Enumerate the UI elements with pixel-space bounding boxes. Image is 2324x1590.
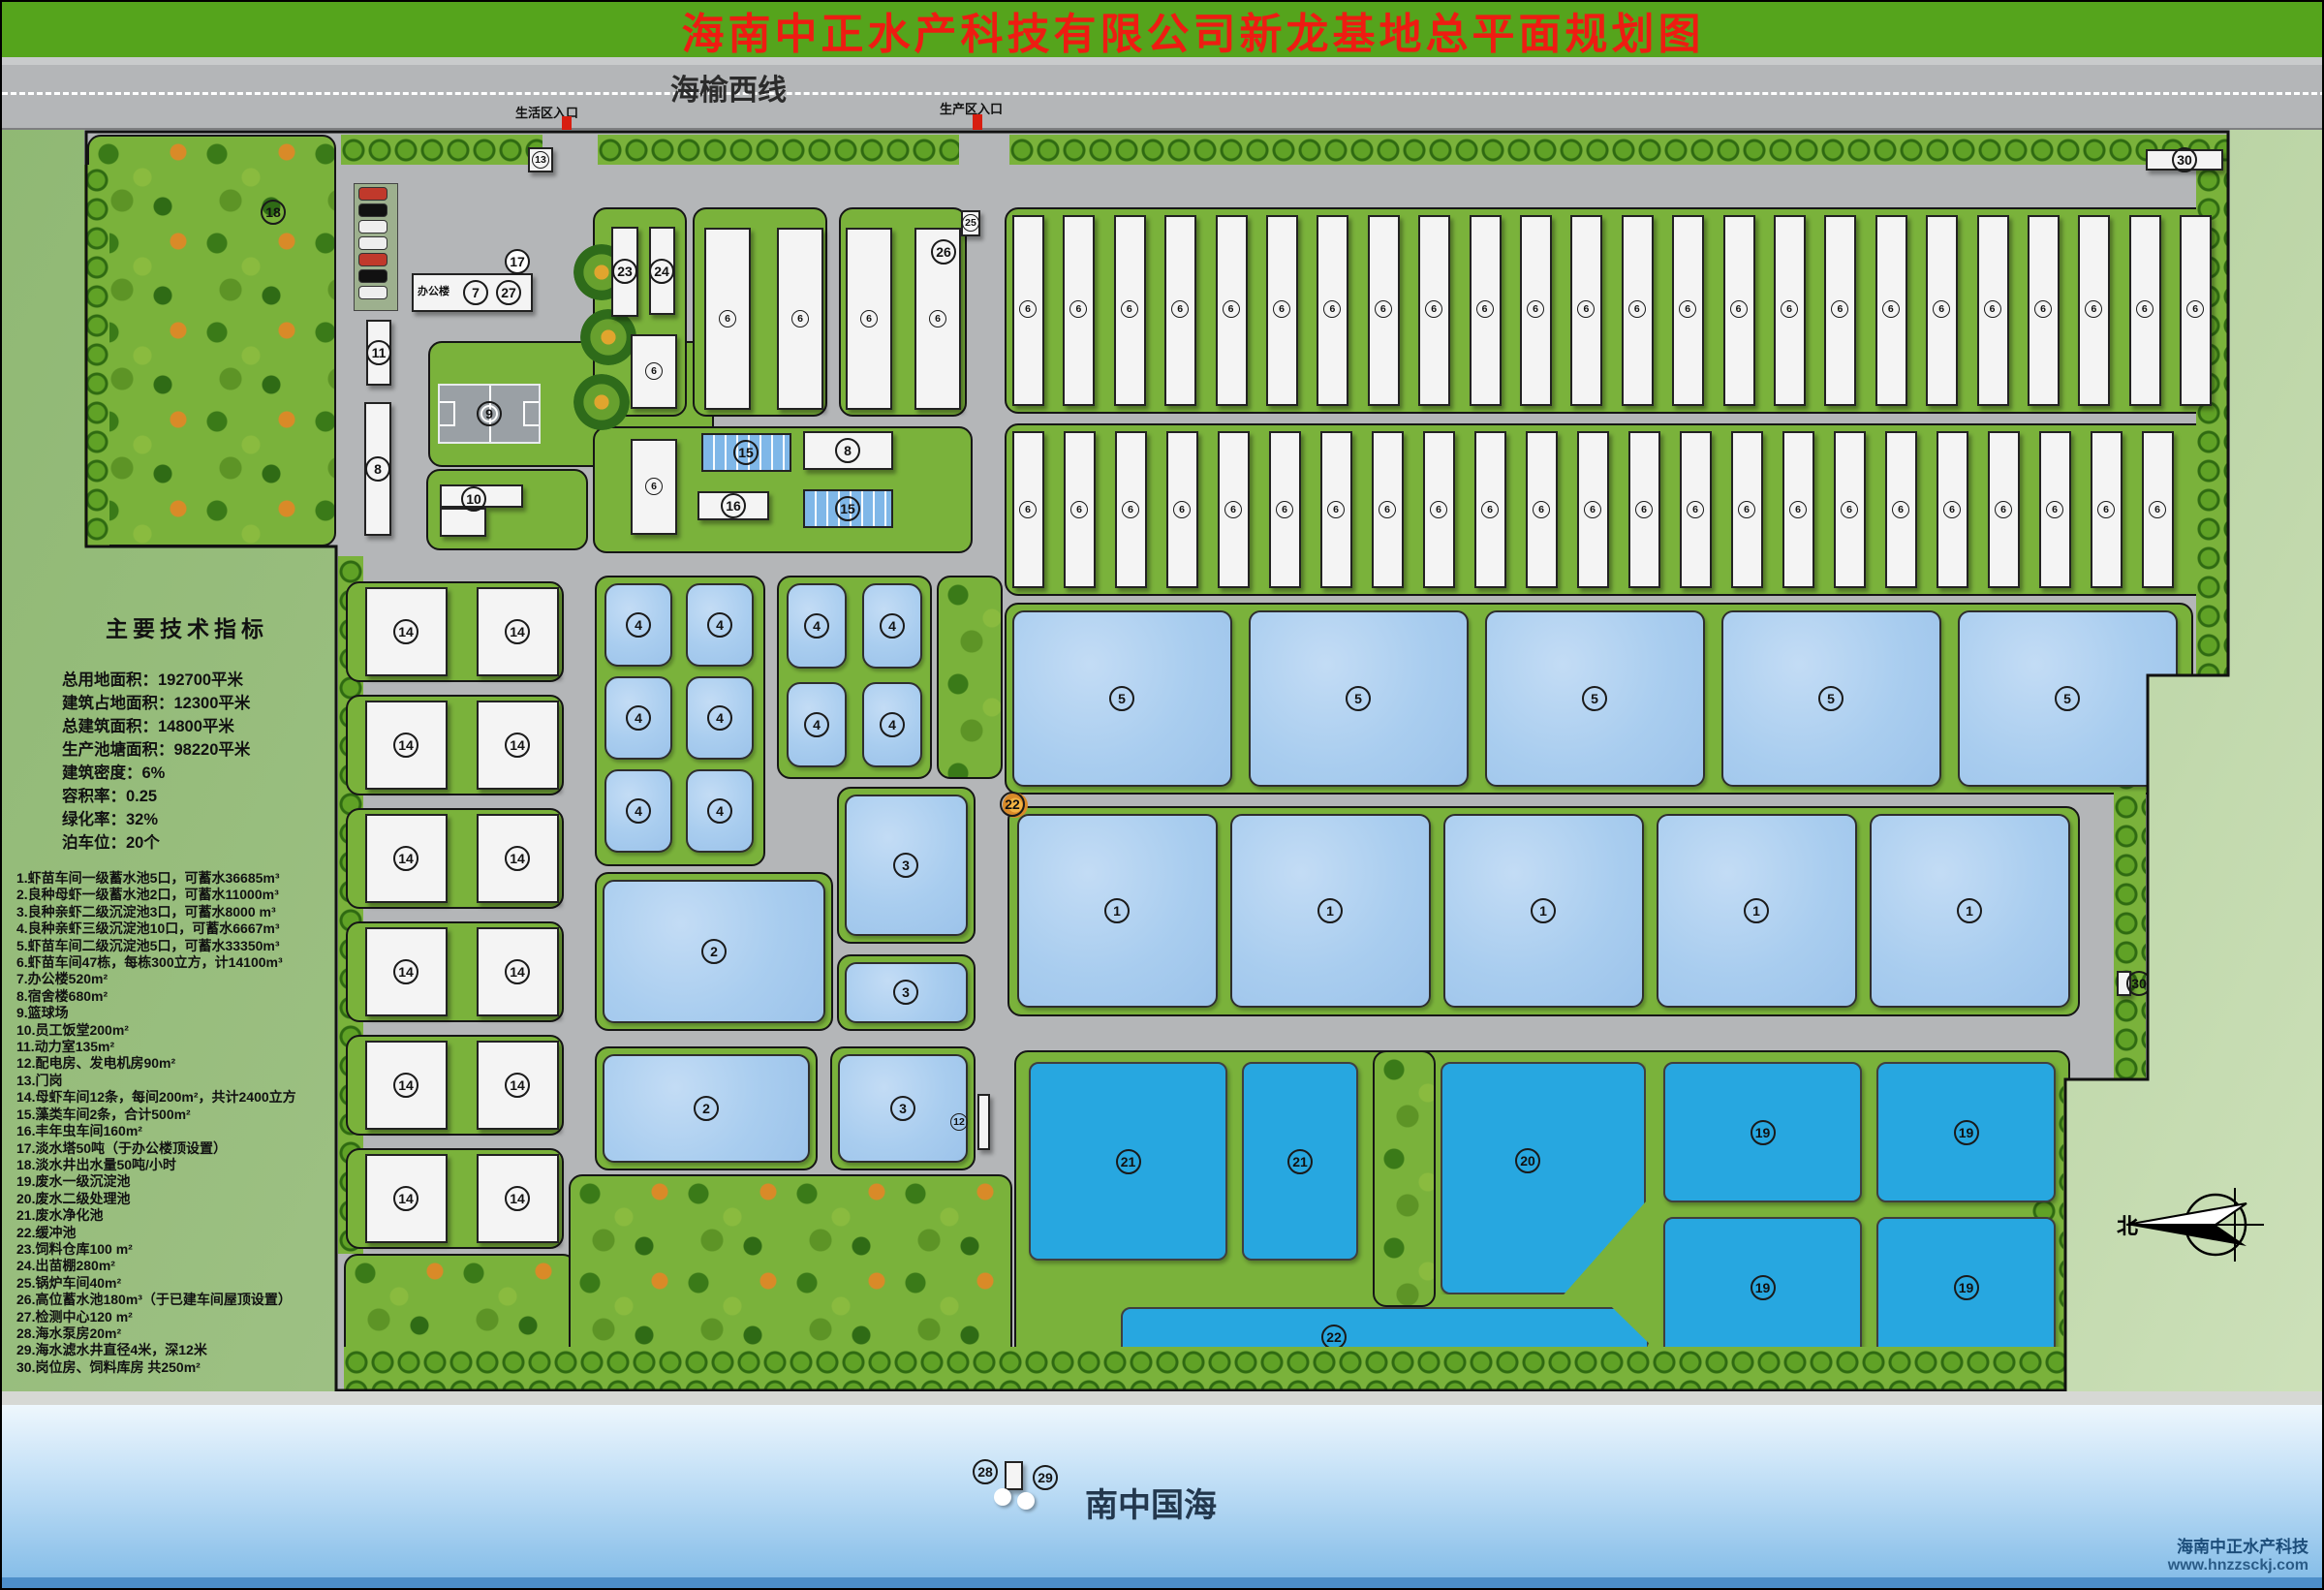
legend-panel: 主要技术指标 总用地面积：192700平米建筑占地面积：12300平米总建筑面积… (16, 610, 341, 1376)
legend-item: 8.宿舍楼680m² (16, 988, 341, 1005)
legend-item: 6.虾苗车间47栋，每栋300立方，计14100m³ (16, 954, 341, 971)
filter-well-marker: 29 (1033, 1465, 1058, 1490)
legend-stats: 总用地面积：192700平米建筑占地面积：12300平米总建筑面积：14800平… (16, 669, 341, 855)
legend-item: 11.动力室135m² (16, 1039, 341, 1055)
legend-item: 5.虾苗车间二级沉淀池5口，可蓄水33350m³ (16, 938, 341, 954)
legend-item: 14.母虾车间12条，每间200m²，共计2400立方 (16, 1089, 341, 1106)
entrance-right-arrow (973, 114, 982, 130)
legend-item: 26.高位蓄水池180m³（于已建车间屋顶设置） (16, 1292, 341, 1308)
highway-centerline (2, 92, 2324, 95)
page-title: 海南中正水产科技有限公司新龙基地总平面规划图 (624, 0, 1705, 61)
legend-item: 23.饲料仓库100 m² (16, 1241, 341, 1258)
legend-item: 13.门岗 (16, 1073, 341, 1089)
pump-house-marker: 28 (973, 1459, 998, 1484)
legend-item: 15.藻类车间2条，合计500m² (16, 1107, 341, 1123)
legend-item: 28.海水泵房20m² (16, 1325, 341, 1342)
legend-stat: 生产池塘面积：98220平米 (62, 738, 341, 762)
legend-item: 19.废水一级沉淀池 (16, 1173, 341, 1190)
watermark-url: www.hnzzsckj.com (2168, 1557, 2309, 1574)
legend-items: 1.虾苗车间一级蓄水池5口，可蓄水36685m³2.良种母虾一级蓄水池2口，可蓄… (16, 870, 341, 1376)
site-plan-canvas: 海南中正水产科技有限公司新龙基地总平面规划图 海榆西线 生活区入口 生产区入口 … (0, 0, 2324, 1590)
legend-item: 24.出苗棚280m² (16, 1258, 341, 1274)
highway-edge (2, 57, 2324, 65)
legend-title: 主要技术指标 (16, 610, 341, 643)
watermark-company: 海南中正水产科技 (2168, 1533, 2309, 1557)
legend-stat: 泊车位：20个 (62, 831, 341, 855)
highway (2, 57, 2324, 130)
legend-stat: 绿化率：32% (62, 808, 341, 831)
sea-name: 南中国海 (1085, 1479, 1376, 1526)
legend-item: 9.篮球场 (16, 1005, 341, 1021)
legend-item: 27.检测中心120 m² (16, 1309, 341, 1325)
legend-item: 12.配电房、发电机房90m² (16, 1055, 341, 1072)
legend-item: 22.缓冲池 (16, 1225, 341, 1241)
title-banner: 海南中正水产科技有限公司新龙基地总平面规划图 (2, 2, 2324, 57)
compass-north-arrow: 北 (2117, 1184, 2272, 1265)
watermark: 海南中正水产科技 www.hnzzsckj.com (2168, 1533, 2309, 1574)
legend-item: 3.良种亲虾二级沉淀池3口，可蓄水8000 m³ (16, 904, 341, 920)
legend-stat: 总建筑面积：14800平米 (62, 715, 341, 738)
legend-item: 29.海水滤水井直径4米，深12米 (16, 1342, 341, 1358)
legend-item: 1.虾苗车间一级蓄水池5口，可蓄水36685m³ (16, 870, 341, 887)
filter-well-1 (994, 1488, 1011, 1506)
legend-stat: 容积率：0.25 (62, 785, 341, 808)
legend-stat: 建筑密度：6% (62, 762, 341, 785)
legend-item: 20.废水二级处理池 (16, 1191, 341, 1207)
legend-item: 30.岗位房、饲料库房 共250m² (16, 1359, 341, 1376)
legend-stat: 建筑占地面积：12300平米 (62, 692, 341, 715)
filter-well-2 (1017, 1492, 1035, 1510)
legend-item: 25.锅炉车间40m² (16, 1275, 341, 1292)
pump-house (1005, 1461, 1023, 1490)
legend-item: 2.良种母虾一级蓄水池2口，可蓄水11000m³ (16, 887, 341, 903)
legend-item: 21.废水净化池 (16, 1207, 341, 1224)
site-boundary (84, 130, 2230, 1392)
svg-text:北: 北 (2117, 1214, 2138, 1238)
legend-item: 7.办公楼520m² (16, 971, 341, 987)
legend-item: 17.淡水塔50吨（于办公楼顶设置） (16, 1140, 341, 1157)
legend-item: 16.丰年虫车间160m² (16, 1123, 341, 1139)
legend-stat: 总用地面积：192700平米 (62, 669, 341, 692)
legend-item: 18.淡水井出水量50吨/小时 (16, 1157, 341, 1173)
entrance-right-label: 生产区入口 (940, 99, 1003, 117)
legend-item: 10.员工饭堂200m² (16, 1022, 341, 1039)
legend-item: 4.良种亲虾三级沉淀池10口，可蓄水6667m³ (16, 920, 341, 937)
sea-bottom-bar (2, 1577, 2324, 1590)
